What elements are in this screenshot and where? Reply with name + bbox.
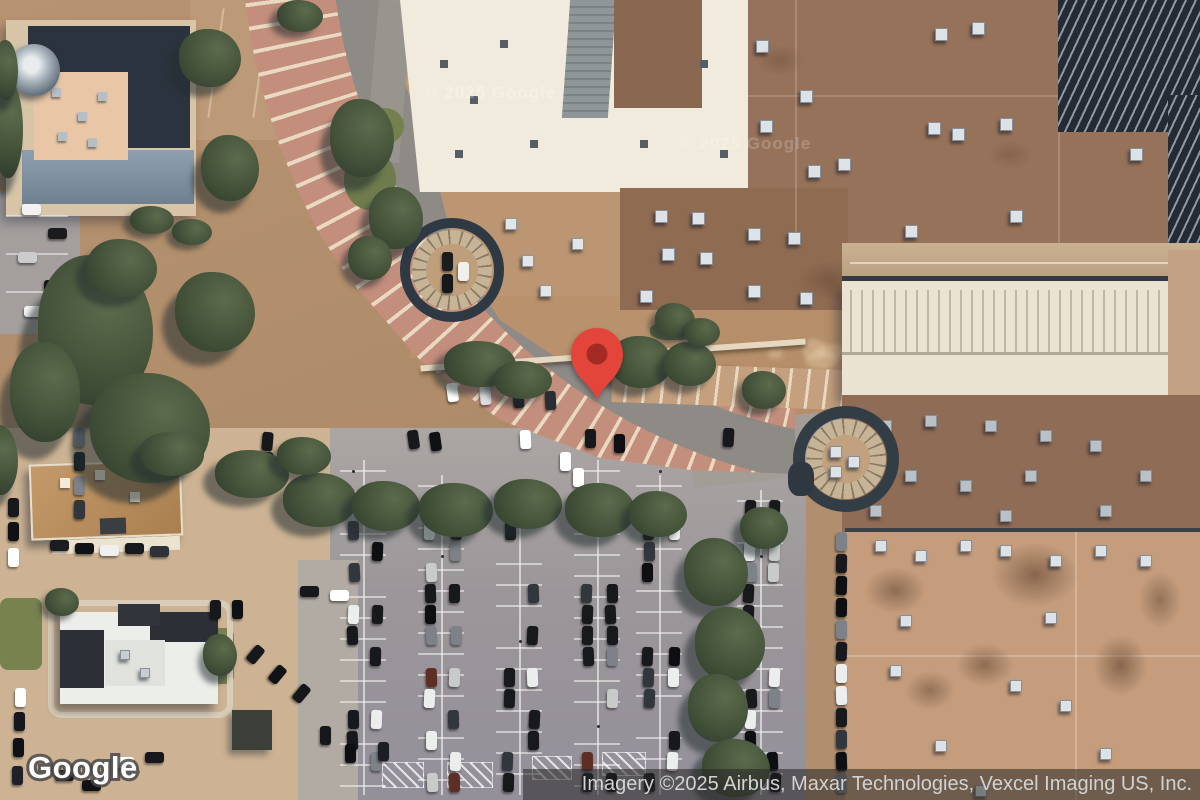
car [607, 689, 618, 708]
car [426, 668, 437, 687]
building-roof [232, 710, 272, 750]
rooftop-equipment [500, 40, 508, 48]
tree [742, 371, 786, 409]
car [426, 731, 437, 750]
car [449, 668, 461, 687]
car [371, 710, 383, 729]
car [330, 590, 349, 601]
car [606, 584, 617, 603]
car [607, 647, 618, 666]
parking-line [737, 731, 783, 733]
car [378, 742, 389, 761]
parking-line [636, 485, 682, 487]
car [426, 773, 438, 792]
roof-seam [842, 352, 1168, 355]
car [425, 605, 436, 624]
equipment-pad [505, 218, 517, 230]
solar-panels [1168, 95, 1200, 257]
road-line [850, 262, 1200, 264]
hvac-unit [1130, 148, 1143, 161]
car [642, 563, 653, 582]
satellite-map[interactable]: © 2025 Google © 2025 Google Google Googl… [0, 0, 1200, 800]
roof-stain [978, 135, 1043, 175]
tree [494, 361, 552, 399]
car [644, 689, 656, 708]
parking-line [636, 695, 682, 697]
parking-line [574, 575, 620, 577]
hvac-unit [1040, 430, 1052, 442]
car [581, 584, 593, 603]
tree [201, 135, 259, 201]
hvac-unit [928, 122, 941, 135]
hvac-unit [58, 132, 67, 141]
roof-stain [853, 558, 938, 623]
car [448, 773, 460, 792]
hvac-unit [800, 90, 813, 103]
car [450, 626, 461, 645]
tree [172, 219, 212, 245]
tree [684, 318, 720, 346]
hvac-unit [830, 446, 842, 458]
hvac-unit [1060, 700, 1072, 712]
car [426, 626, 438, 645]
parking-line [636, 611, 682, 613]
parking-line [340, 470, 386, 472]
car [348, 710, 359, 729]
map-pin-marker[interactable] [569, 327, 625, 401]
car [560, 452, 571, 471]
car [607, 626, 618, 645]
rooftop-equipment [60, 478, 70, 488]
car [425, 584, 437, 603]
car [15, 688, 26, 707]
car [582, 626, 593, 645]
car [614, 434, 625, 453]
tree [740, 507, 788, 549]
car [348, 605, 360, 624]
parking-line [496, 689, 542, 691]
rooftop-equipment [530, 140, 538, 148]
tree [419, 483, 493, 537]
car [526, 626, 538, 646]
car [448, 710, 459, 729]
hvac-unit [88, 138, 97, 147]
car [12, 766, 23, 785]
car [448, 584, 459, 603]
car [320, 726, 331, 745]
tree [140, 432, 204, 476]
hvac-unit [98, 92, 107, 101]
hvac-unit [78, 112, 87, 121]
car [836, 708, 847, 727]
car [50, 540, 69, 551]
car [768, 563, 779, 582]
hvac-unit [960, 480, 972, 492]
hvac-unit [848, 456, 860, 468]
parking-line [574, 743, 620, 745]
rooftop-equipment [440, 60, 448, 68]
hvac-unit [700, 252, 713, 265]
hvac-unit [748, 228, 761, 241]
tree [10, 342, 80, 442]
hvac-unit [1090, 440, 1102, 452]
equipment-pad [540, 285, 552, 297]
tree [45, 588, 79, 616]
hvac-unit [1025, 470, 1037, 482]
tree [330, 99, 394, 177]
car [347, 626, 359, 645]
parking-line [636, 632, 682, 634]
car [345, 744, 356, 763]
parking-line [574, 680, 620, 682]
building-roof [105, 640, 165, 686]
car [48, 228, 67, 239]
tree [277, 0, 323, 32]
car [75, 543, 94, 554]
car [528, 731, 539, 750]
hvac-unit [1000, 510, 1012, 522]
hvac-unit [935, 28, 948, 41]
car [605, 605, 617, 625]
hvac-unit [870, 505, 882, 517]
hvac-unit [830, 466, 842, 478]
building-roof [118, 604, 160, 626]
car [768, 668, 780, 687]
pin-dot [587, 344, 608, 365]
hvac-unit [1045, 612, 1057, 624]
car [261, 432, 274, 452]
car [503, 689, 515, 708]
roof-stain [745, 38, 815, 83]
parking-line [496, 647, 542, 649]
parking-line [340, 701, 386, 703]
roof-seam [795, 0, 797, 240]
car [528, 710, 540, 730]
google-logo-text: Google [28, 750, 138, 786]
parking-line [340, 680, 386, 682]
car [372, 605, 384, 624]
car [503, 773, 514, 792]
tree [494, 479, 562, 529]
parking-line [418, 653, 464, 655]
hvac-unit [808, 165, 821, 178]
rooftop-equipment [455, 150, 463, 158]
car [13, 738, 24, 757]
hvac-unit [985, 420, 997, 432]
hvac-unit [838, 158, 851, 171]
car [545, 391, 557, 411]
light-pole [441, 555, 444, 558]
car [526, 668, 538, 687]
tree [179, 29, 241, 87]
light-pole [352, 470, 355, 473]
shadow [788, 462, 814, 496]
hvac-unit [875, 540, 887, 552]
hvac-unit [662, 248, 675, 261]
attribution-bar: Imagery ©2025 Airbus, Maxar Technologies… [523, 769, 1200, 800]
car [458, 262, 469, 281]
hvac-unit [1100, 748, 1112, 760]
parking-line [340, 785, 386, 787]
car [210, 600, 221, 619]
building-roof [614, 0, 702, 108]
hvac-unit [972, 22, 985, 35]
car [836, 730, 847, 749]
car [442, 252, 453, 271]
car [836, 532, 847, 551]
car [232, 600, 243, 619]
car [504, 668, 515, 687]
car [723, 428, 735, 448]
hvac-unit [120, 650, 130, 660]
car [836, 576, 848, 595]
hvac-unit [1010, 680, 1022, 692]
car [370, 647, 381, 666]
tree [629, 491, 687, 537]
car [150, 546, 169, 557]
hvac-unit [748, 285, 761, 298]
parking-line [496, 563, 542, 565]
car [582, 647, 594, 666]
car [424, 689, 436, 709]
car [145, 752, 164, 763]
car [582, 605, 594, 624]
car [528, 584, 540, 603]
roof-stain [895, 663, 965, 718]
light-pole [519, 640, 522, 643]
car [669, 731, 680, 750]
tree [277, 437, 331, 475]
parking-line [496, 605, 542, 607]
hvac-unit [655, 210, 668, 223]
hvac-unit [1140, 470, 1152, 482]
hvac-unit [140, 668, 150, 678]
rooftop-equipment [100, 518, 127, 535]
light-pole [597, 725, 600, 728]
car [642, 647, 654, 666]
car [426, 563, 438, 582]
car [450, 752, 461, 771]
car [520, 430, 532, 450]
hvac-unit [935, 740, 947, 752]
roof-stain [975, 530, 1095, 620]
car [836, 554, 847, 573]
car [371, 542, 383, 561]
attribution-text: Imagery ©2025 Airbus, Maxar Technologies… [582, 773, 1192, 795]
car [668, 668, 679, 687]
car [300, 586, 319, 597]
car [8, 498, 19, 517]
tree [175, 272, 255, 352]
hvac-unit [1000, 545, 1012, 557]
rooftop-equipment [640, 140, 648, 148]
car [668, 647, 680, 666]
car [836, 686, 848, 705]
car [769, 689, 780, 708]
car [348, 563, 360, 582]
hvac-unit [1010, 210, 1023, 223]
car [100, 545, 119, 556]
tree [130, 206, 174, 234]
car [502, 752, 514, 771]
car [836, 620, 847, 639]
tree [348, 236, 392, 280]
building-roof [60, 630, 104, 688]
hvac-unit [1050, 555, 1062, 567]
rooftop-equipment [720, 150, 728, 158]
tree [203, 634, 237, 676]
parking-line [636, 548, 682, 550]
car [18, 252, 37, 263]
rooftop-equipment [700, 60, 708, 68]
car [14, 712, 25, 731]
skylight-roof [562, 0, 616, 118]
hvac-unit [692, 212, 705, 225]
car [836, 598, 847, 617]
equipment-pad [522, 255, 534, 267]
hvac-unit [788, 232, 801, 245]
car [8, 522, 19, 541]
parking-line [6, 215, 68, 217]
equipment-pad [572, 238, 584, 250]
parking-line [574, 554, 620, 556]
parking-line [418, 737, 464, 739]
car [22, 204, 41, 215]
car [74, 500, 85, 519]
hvac-unit [952, 128, 965, 141]
parking-line [6, 253, 68, 255]
hvac-unit [905, 470, 917, 482]
car [836, 642, 848, 661]
roof-stain [1130, 560, 1190, 640]
hvac-unit [52, 88, 61, 97]
car [836, 664, 847, 683]
hvac-unit [1100, 505, 1112, 517]
hvac-unit [960, 540, 972, 552]
hvac-unit [640, 290, 653, 303]
hvac-unit [1140, 555, 1152, 567]
car [442, 274, 453, 293]
tree [695, 607, 765, 681]
car [642, 668, 654, 687]
lawn [0, 598, 42, 670]
hvac-unit [1095, 545, 1107, 557]
hvac-unit [890, 665, 902, 677]
roof-ribs [850, 290, 1160, 352]
hvac-unit [760, 120, 773, 133]
car [585, 429, 596, 448]
hvac-unit [915, 550, 927, 562]
hvac-unit [1000, 118, 1013, 131]
light-pole [659, 470, 662, 473]
tree [87, 239, 157, 297]
hvac-unit [925, 415, 937, 427]
hvac-unit [900, 615, 912, 627]
car [8, 548, 19, 567]
rooftop-equipment [470, 96, 478, 104]
tree [688, 674, 748, 742]
hatched-island [382, 762, 424, 788]
car [125, 543, 144, 554]
hvac-unit [905, 225, 918, 238]
